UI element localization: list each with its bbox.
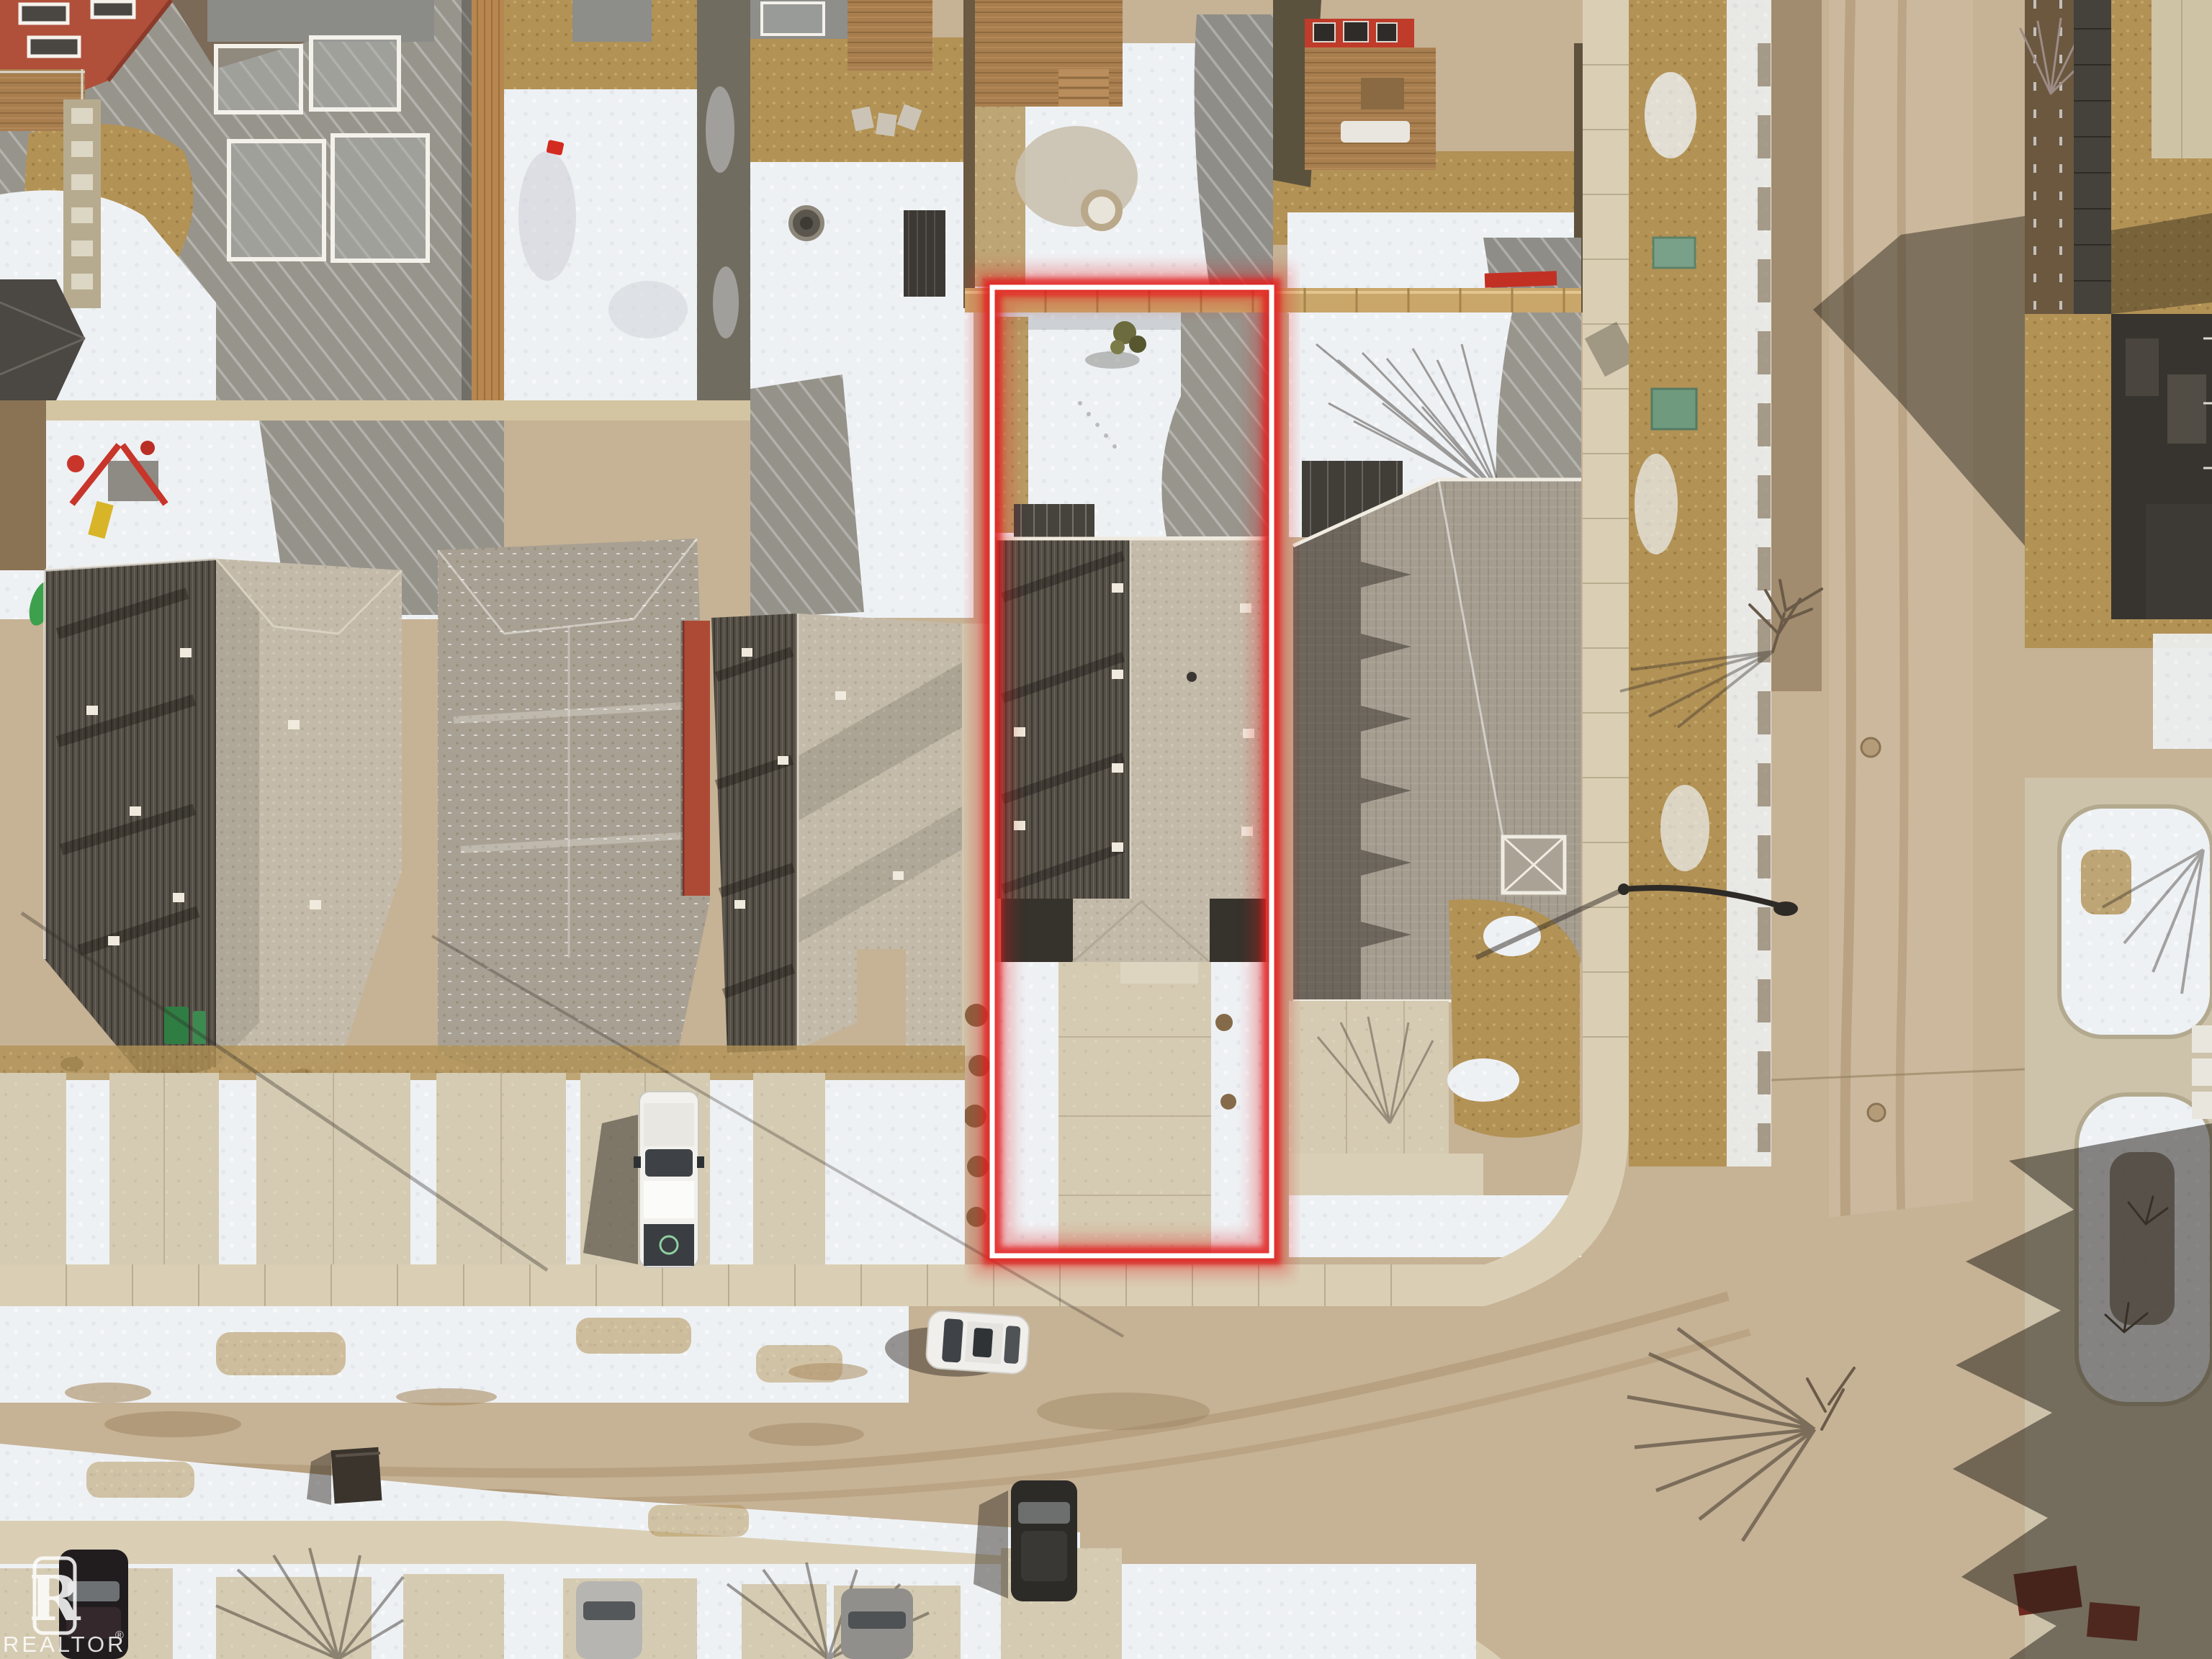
backyard-zone-b [504, 0, 750, 421]
balcony-rails [2192, 1025, 2212, 1119]
sunroof [972, 1328, 993, 1358]
silver-car [576, 1581, 642, 1659]
watermark-text: REALTOR [3, 1632, 127, 1657]
wood-deck [848, 0, 932, 71]
gray-car [841, 1588, 913, 1659]
sunroom-glass-panels [216, 37, 428, 261]
watermark-registered-mark: ® [115, 1629, 124, 1642]
pergola [1014, 504, 1094, 539]
manhole [1868, 1104, 1885, 1121]
side-walkway [697, 0, 750, 403]
boulevard-north [0, 1306, 909, 1406]
duplex-c [711, 613, 962, 1060]
red-side-wall [683, 621, 710, 896]
privacy-screen [904, 210, 945, 297]
windshield [942, 1318, 963, 1363]
lot-house-roof [997, 539, 1266, 962]
house-b [438, 539, 710, 1082]
backyard-above-lot [975, 0, 1273, 288]
fence-row-left [0, 400, 508, 421]
utility-box [1653, 238, 1695, 268]
manhole [1861, 738, 1880, 757]
fire-ring [1084, 193, 1119, 228]
wood-fence-vertical [472, 0, 505, 402]
realtor-logo-letter: R [29, 1563, 81, 1635]
curb-bed [2059, 806, 2212, 1037]
duplex-a [45, 559, 402, 1086]
block-top-right [2020, 0, 2212, 749]
brown-roof-edge [0, 400, 46, 570]
truck-bed [644, 1224, 694, 1266]
table [1361, 78, 1404, 109]
aerial-photo: R REALTOR ® [0, 0, 2212, 1659]
fence [963, 0, 975, 310]
backyard-zone-c [750, 0, 975, 618]
windshield [645, 1149, 693, 1177]
bench [1341, 121, 1410, 143]
aerial-photo-canvas: R REALTOR ® [0, 0, 2212, 1659]
house-right-neighbor [1289, 313, 1581, 1257]
utility-box [1652, 389, 1696, 429]
red-deck-strip [1485, 271, 1557, 287]
backyard-zone-a [0, 0, 508, 421]
